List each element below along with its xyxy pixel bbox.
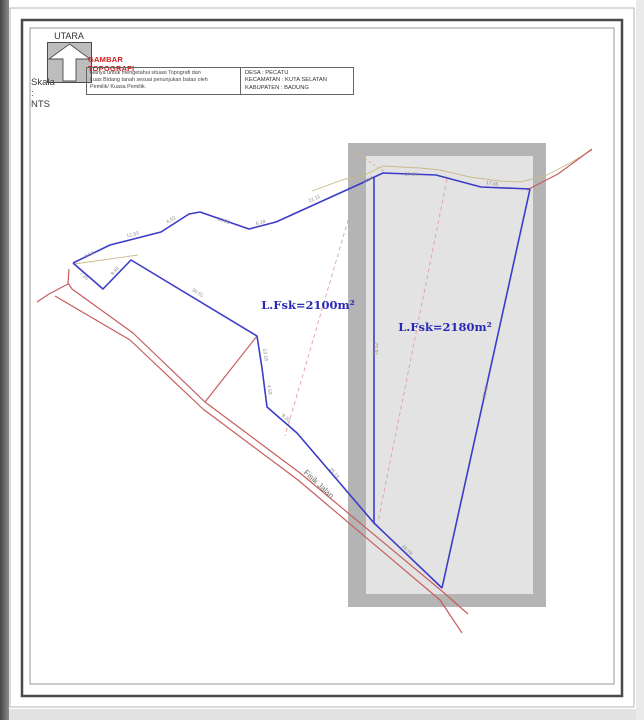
location-line-kecamatan: KECAMATAN : KUTA SELATAN: [245, 77, 349, 84]
measurement-label: 78.12: [374, 343, 380, 356]
measurement-label: 13.00: [216, 216, 230, 226]
measurement-label: 25.73: [327, 467, 340, 481]
description-line: Hanya untuk mengetahui situasi Topografi…: [90, 70, 237, 77]
measurement-label: 9.20: [280, 413, 291, 424]
description-box: Hanya untuk mengetahui situasi Topografi…: [87, 68, 241, 94]
measurement-label: 13.18: [261, 348, 269, 362]
measurement-label: 6.18: [255, 219, 266, 227]
measurement-label: 6.52: [166, 215, 178, 225]
survey-sheet: L.Fsk=2100m²L.Fsk=2180m²Fisik Jalan0.647…: [0, 0, 644, 720]
description-line: Luas Bidang tanah sesuai penunjukan bata…: [90, 77, 237, 84]
measurement-label: 0.64: [84, 250, 96, 260]
measurement-label: 7.25: [78, 271, 89, 282]
location-line-desa: DESA : PECATU: [245, 70, 349, 77]
north-label: UTARA: [44, 31, 94, 41]
location-line-kabupaten: KABUPATEN : BADUNG: [245, 85, 349, 92]
survey-drawing: L.Fsk=2100m²L.Fsk=2180m²Fisik Jalan0.647…: [0, 0, 644, 720]
measurement-label: 17.59: [405, 172, 418, 178]
title-block-boxes: Hanya untuk mengetahui situasi Topografi…: [86, 67, 354, 95]
location-box: DESA : PECATU KECAMATAN : KUTA SELATAN K…: [241, 68, 353, 94]
parcel-area-label: L.Fsk=2180m²: [398, 320, 492, 334]
measurement-label: 9.45: [110, 266, 121, 277]
measurement-label: 4.59: [265, 385, 272, 396]
description-line: Pemilik/ Kuasa Pemilik.: [90, 84, 237, 91]
scale-label: Skala : NTS: [31, 77, 55, 110]
parcel-area-label: L.Fsk=2100m²: [261, 298, 355, 312]
